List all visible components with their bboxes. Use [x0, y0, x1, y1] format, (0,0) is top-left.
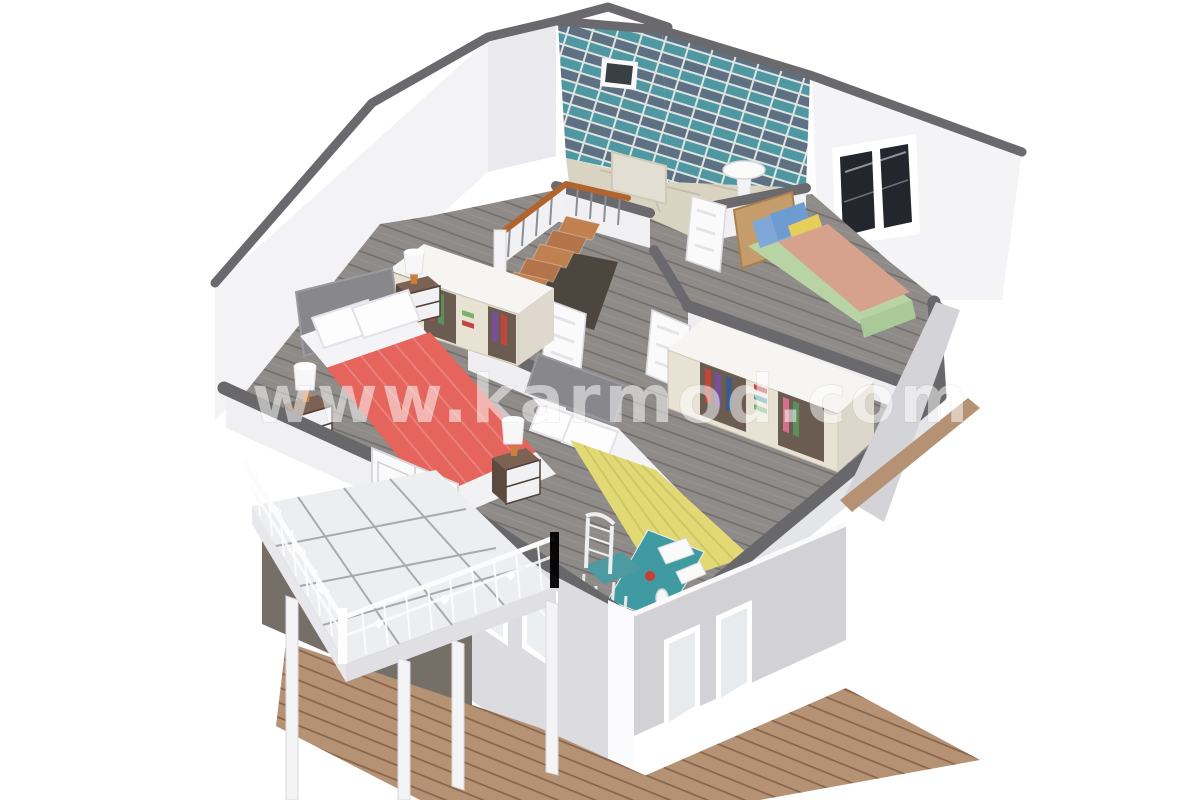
railing-newel: [550, 532, 559, 588]
bathroom-window: [600, 58, 638, 90]
red-bottle: [645, 571, 655, 581]
lower-window: [664, 624, 700, 730]
watermark-text: www.karmod.com: [252, 361, 972, 438]
bathroom-door: [686, 196, 726, 272]
floorplan-3d-render: www.karmod.com: [0, 0, 1200, 800]
stair-newel-post: [494, 230, 506, 274]
lower-window: [716, 600, 752, 706]
render-canvas: www.karmod.com: [0, 0, 1200, 800]
railing-newel: [338, 608, 347, 664]
left-wing-return-wall: [488, 24, 556, 172]
